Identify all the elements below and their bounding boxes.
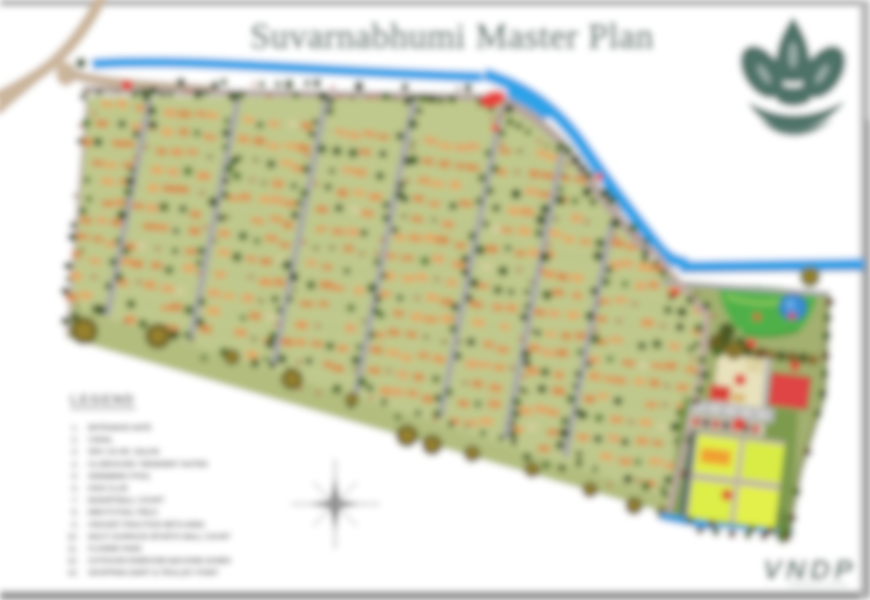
svg-text:12.: 12. bbox=[68, 556, 78, 565]
svg-text:SPA / 24 HR. SALON: SPA / 24 HR. SALON bbox=[88, 447, 159, 456]
svg-text:7.: 7. bbox=[72, 496, 78, 505]
svg-text:CRICKET PRACTICE NETS AREA: CRICKET PRACTICE NETS AREA bbox=[88, 520, 205, 529]
svg-text:CANAL: CANAL bbox=[88, 435, 113, 444]
svg-text:SWIMMING POOL: SWIMMING POOL bbox=[88, 471, 151, 480]
svg-text:OUTDOOR EXERCISE MACHINE ZONES: OUTDOOR EXERCISE MACHINE ZONES bbox=[88, 556, 231, 565]
svg-text:2.: 2. bbox=[72, 435, 78, 444]
svg-text:1.: 1. bbox=[72, 423, 78, 432]
svg-text:FLOWER PARK: FLOWER PARK bbox=[88, 544, 142, 553]
svg-text:6.: 6. bbox=[72, 484, 78, 493]
svg-text:10.: 10. bbox=[68, 532, 78, 541]
svg-text:V N D P D E V E L O P E R S: V N D P D E V E L O P E R S bbox=[788, 582, 847, 587]
svg-text:VNDP: VNDP bbox=[763, 554, 857, 585]
svg-text:4.: 4. bbox=[72, 459, 78, 468]
svg-text:Suvarnabhumi Master Plan: Suvarnabhumi Master Plan bbox=[250, 16, 654, 56]
svg-text:ENTRANCE GATE: ENTRANCE GATE bbox=[88, 423, 151, 432]
svg-text:11.: 11. bbox=[68, 544, 78, 553]
svg-text:9.: 9. bbox=[72, 520, 78, 529]
svg-text:CLUBHOUSE / RESIDENT SUITES: CLUBHOUSE / RESIDENT SUITES bbox=[88, 459, 208, 468]
svg-text:KIDS CLUB: KIDS CLUB bbox=[88, 484, 128, 493]
svg-text:LEGEND: LEGEND bbox=[70, 392, 135, 407]
svg-text:MINI FUTSAL FIELD: MINI FUTSAL FIELD bbox=[88, 508, 158, 517]
svg-text:8.: 8. bbox=[72, 508, 78, 517]
svg-text:5.: 5. bbox=[72, 471, 78, 480]
svg-text:MULTI SURFACE SPORTS WALL COUR: MULTI SURFACE SPORTS WALL COURT bbox=[88, 532, 231, 541]
svg-text:SHOPPING MART & TROLLEY POINT: SHOPPING MART & TROLLEY POINT bbox=[88, 568, 219, 577]
svg-text:BASKETBALL COURT: BASKETBALL COURT bbox=[88, 496, 165, 505]
svg-text:13.: 13. bbox=[68, 568, 78, 577]
svg-text:3.: 3. bbox=[72, 447, 78, 456]
